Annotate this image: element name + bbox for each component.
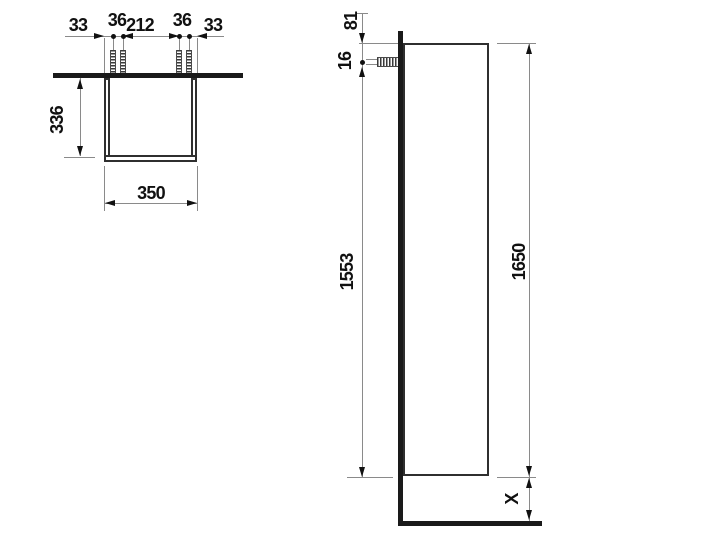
floor-line [398,521,542,526]
dim-label-x: X [503,493,521,504]
extension-line-cabinet-top-left [359,43,398,44]
extension-line-cabinet-bottom-left [347,477,393,478]
dim-line-right-column [529,43,530,521]
dim-label-350: 350 [137,184,165,202]
dim-label-33-right: 33 [204,16,222,34]
dim-arrow [526,478,532,488]
cabinet-front-panel [104,155,197,162]
dim-label-81: 81 [342,12,360,30]
dim-arrow [359,33,365,43]
dim-arrow [77,146,83,156]
dim-label-1650: 1650 [510,244,528,281]
screw-icon [110,50,116,73]
cabinet-left-wall [104,78,110,162]
dim-arrow [526,466,532,476]
wall-surface-line [53,73,243,78]
dim-line-336 [80,78,81,156]
dim-label-36-right: 36 [173,11,191,29]
dim-label-212: 212 [126,16,154,34]
dim-point-screw-1 [111,34,116,39]
extension-line-front [64,157,95,158]
technical-drawing-canvas: 33 36 212 36 33 336 350 [0,0,716,540]
dim-arrow [526,44,532,54]
dim-point-screw-4 [187,34,192,39]
dim-line-350 [105,203,197,204]
dim-arrow [94,33,104,39]
dim-arrow [526,510,532,520]
dim-label-1553: 1553 [338,254,356,291]
extension-line-width-right [197,166,198,211]
screw-icon [377,57,398,67]
extension-line-right-edge [197,38,198,73]
dim-arrow [359,467,365,477]
screw-icon [186,50,192,73]
cabinet-outline [403,43,489,476]
extension-line-left-edge [104,38,105,73]
dim-label-336: 336 [48,106,66,134]
dim-arrow [77,79,83,89]
dim-line-left-column [362,13,363,477]
dim-label-16: 16 [336,52,354,70]
dim-arrow [169,33,179,39]
dim-arrow [105,200,115,206]
cabinet-right-wall [191,78,197,162]
dim-arrow [359,67,365,77]
screw-icon [120,50,126,73]
dim-arrow [187,200,197,206]
screw-icon [176,50,182,73]
dim-label-36-left: 36 [108,11,126,29]
dim-label-33-left: 33 [69,16,87,34]
dim-point-screw [360,60,365,65]
